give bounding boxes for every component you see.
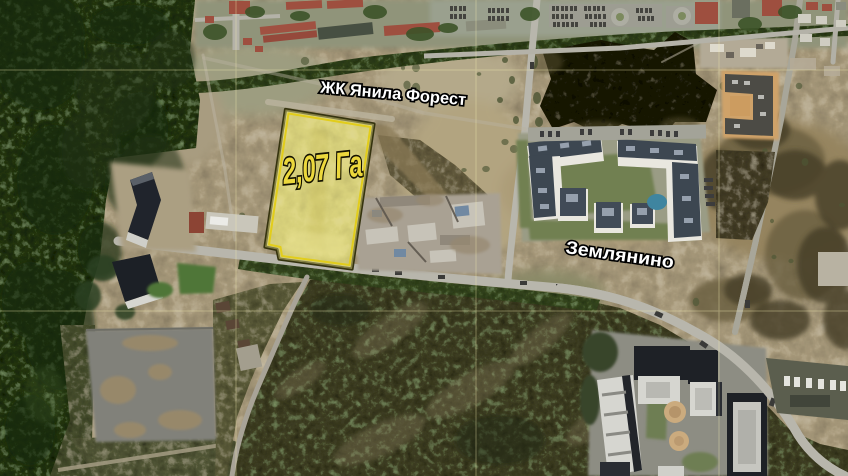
svg-text:2,07 Га: 2,07 Га — [280, 142, 365, 192]
